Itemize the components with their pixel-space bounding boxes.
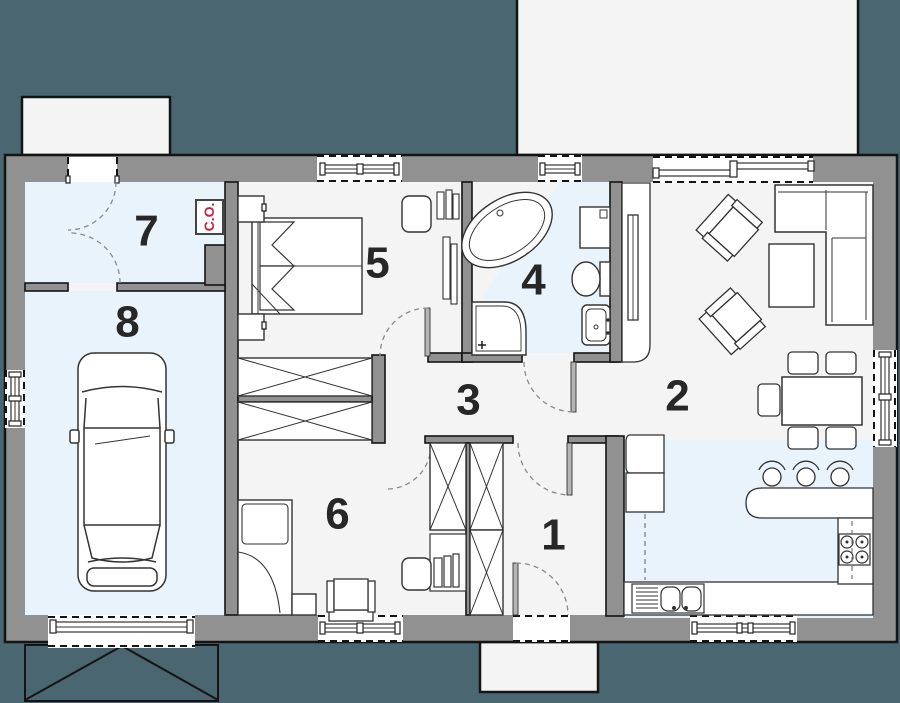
nightstand [238, 314, 264, 340]
sink-tap [684, 606, 688, 610]
floor-plan-drawing: C.O. [0, 0, 900, 703]
kitchen-sink [632, 584, 704, 613]
room6-side-table [402, 558, 431, 590]
nightstand-knob [262, 322, 266, 329]
room-label-3: 3 [456, 376, 479, 425]
tall-cabinet [626, 473, 664, 512]
wardrobe-room6-column [430, 443, 466, 530]
window-room5-north [317, 155, 402, 182]
room5-chair [402, 196, 431, 232]
dining-chair [788, 427, 818, 449]
dining-chair [826, 352, 856, 374]
boiler-label: C.O. [201, 203, 217, 232]
toilet [572, 262, 610, 296]
wall-segment [610, 182, 622, 362]
wardrobe-room1-lower [470, 530, 503, 615]
entry-porch [22, 97, 170, 155]
breakfast-bar [746, 488, 873, 518]
room-label-4: 4 [521, 256, 546, 305]
wall-segment [606, 436, 624, 616]
washing-machine [580, 207, 610, 248]
dining-table [782, 377, 862, 425]
wall-segment [372, 355, 385, 443]
tv-wardrobe-unit [622, 183, 650, 362]
fridge [626, 435, 664, 473]
dining-chair [758, 384, 780, 416]
basin-tap [606, 318, 610, 322]
wardrobe-room1-upper [470, 443, 503, 530]
wall-segment [225, 182, 238, 615]
coffee-table [769, 244, 814, 307]
car-mirror [70, 430, 79, 443]
wall-segment [425, 436, 513, 443]
wardrobe-room6 [238, 402, 372, 440]
room6-armchair [327, 579, 375, 621]
wall-segment [462, 182, 472, 362]
nightstand [238, 196, 264, 222]
entry-stoop [480, 642, 598, 692]
wall-segment [25, 283, 68, 291]
room6-single-bed [238, 500, 292, 615]
car-mirror [165, 430, 174, 443]
cooktop [839, 534, 870, 565]
room-label-6: 6 [325, 490, 348, 539]
window-garage-west [5, 370, 25, 428]
window-kitchen-south [690, 615, 797, 642]
nightstand-knob [262, 204, 266, 211]
room-label-2: 2 [665, 372, 688, 421]
dining-chair [788, 352, 818, 374]
wall-segment [428, 353, 462, 362]
window-bathroom-north [538, 155, 582, 182]
window-dining-east [873, 350, 897, 447]
room-label-1: 1 [541, 511, 565, 560]
dining-chair [826, 427, 856, 449]
sink-tap [672, 606, 676, 610]
wardrobe-room5 [238, 358, 372, 396]
boiler-co-box: C.O. [196, 200, 223, 234]
room5-double-bed [252, 218, 362, 314]
garage-driveway-apron [25, 645, 218, 701]
sliding-terrace-door [653, 156, 814, 183]
room-label-8: 8 [115, 298, 139, 347]
floor-plan-canvas: C.O. [0, 0, 900, 703]
basin-tap [606, 331, 610, 335]
room-label-7: 7 [134, 207, 157, 256]
washbasin [582, 305, 610, 345]
shower [472, 302, 526, 355]
car-top-view [70, 353, 174, 591]
wall-segment [205, 245, 225, 285]
garage-door [48, 615, 195, 648]
room6-book-cabinet [430, 534, 466, 591]
room-label-5: 5 [365, 239, 389, 288]
nightstand [292, 594, 316, 615]
terrace [517, 0, 858, 155]
